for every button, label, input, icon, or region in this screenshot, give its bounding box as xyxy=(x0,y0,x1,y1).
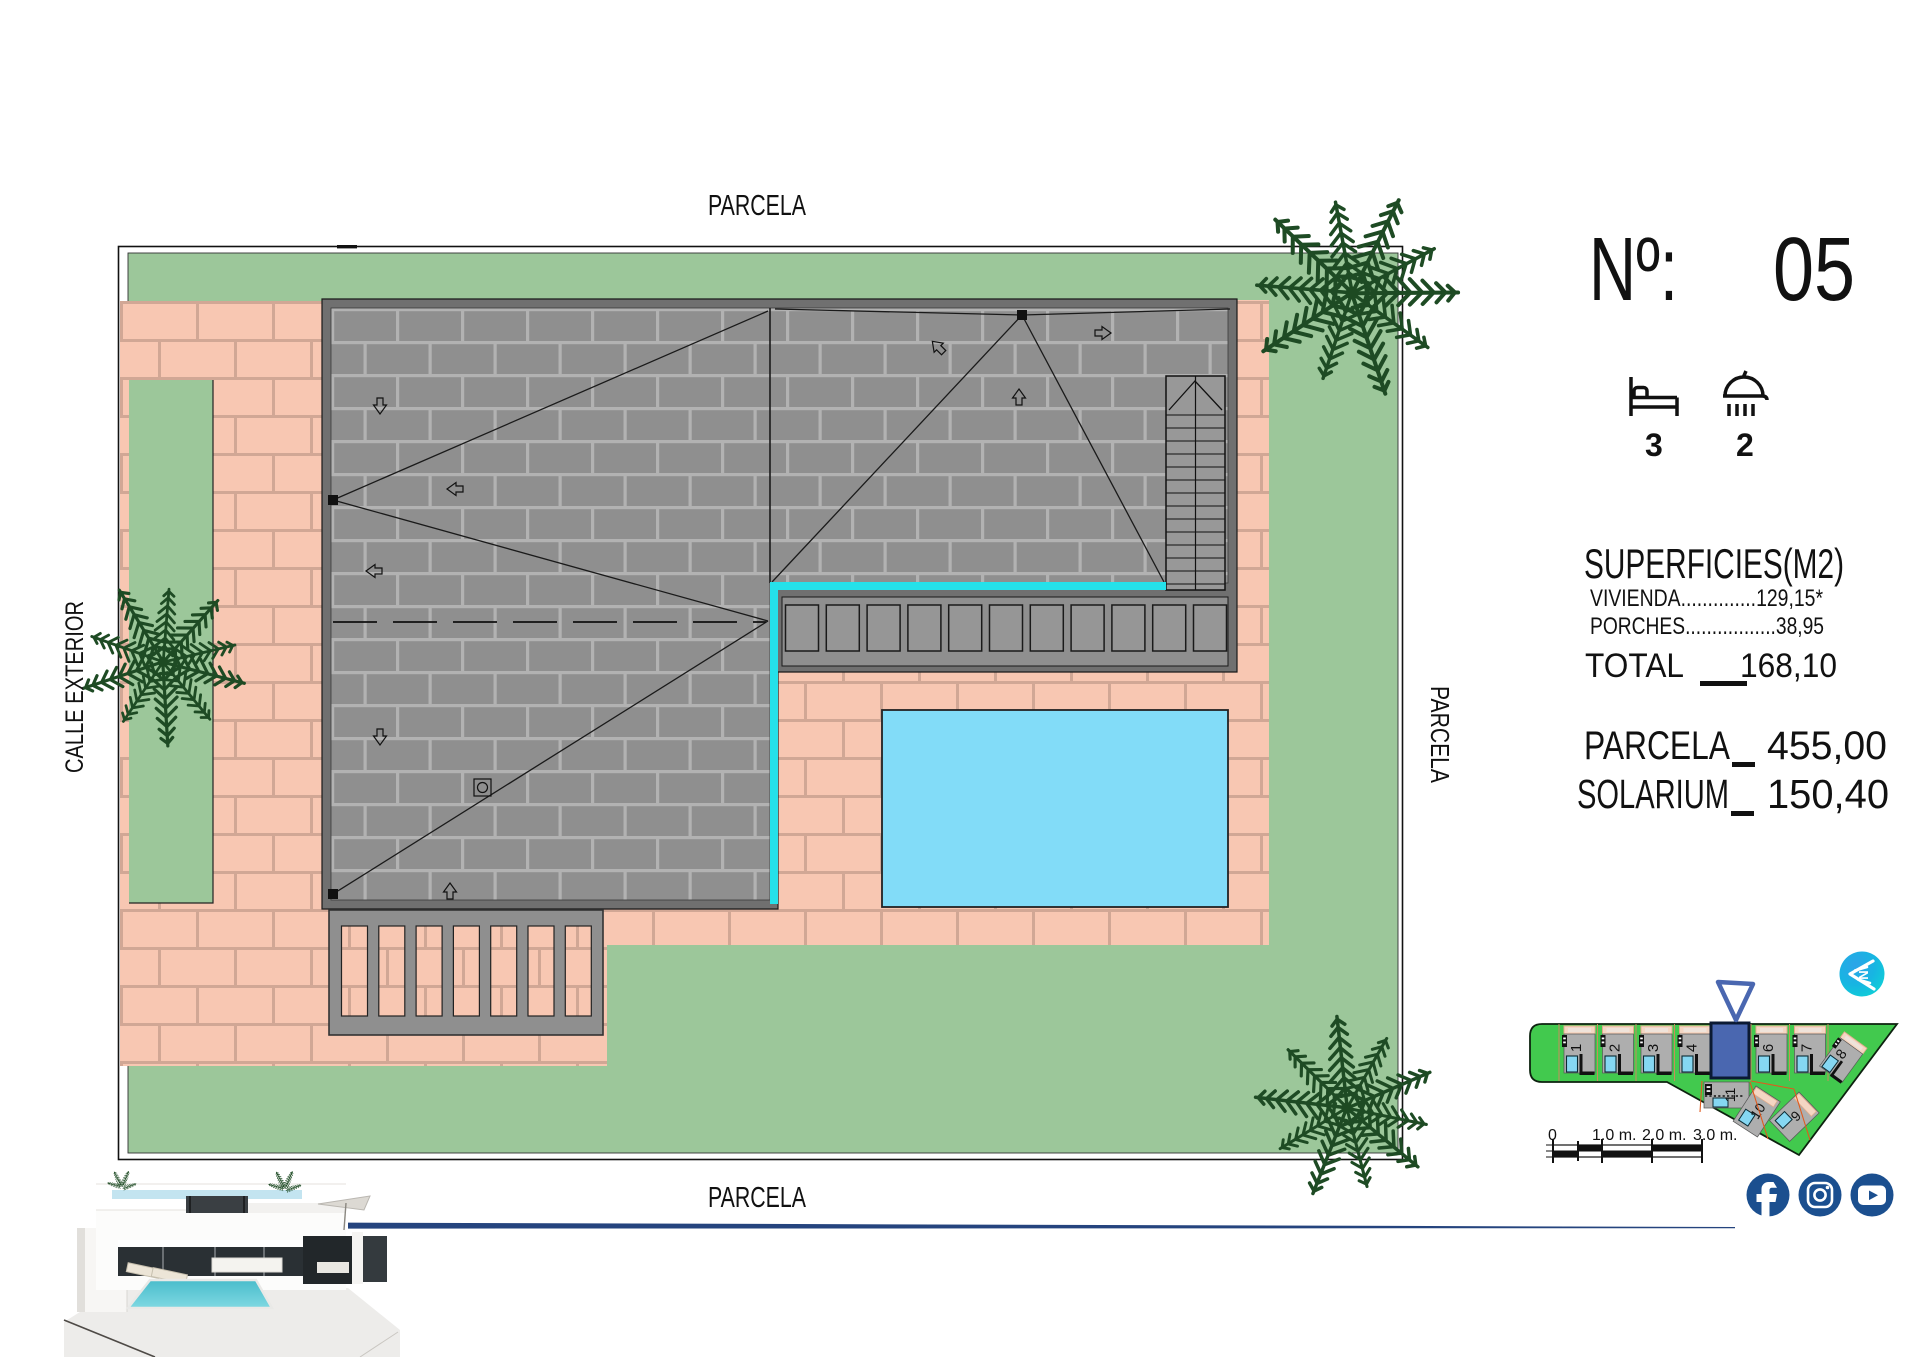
svg-text:Nº:: Nº: xyxy=(1589,220,1678,320)
svg-text:PARCELA: PARCELA xyxy=(1425,686,1455,784)
svg-text:4: 4 xyxy=(1684,1044,1701,1052)
svg-text:6: 6 xyxy=(1760,1044,1777,1052)
svg-text:TOTAL: TOTAL xyxy=(1585,647,1684,685)
svg-text:11: 11 xyxy=(1722,1088,1738,1103)
svg-text:3.0 m.: 3.0 m. xyxy=(1693,1127,1737,1144)
svg-text:3: 3 xyxy=(1645,1044,1662,1052)
svg-text:N: N xyxy=(1856,970,1871,979)
svg-text:150,40: 150,40 xyxy=(1767,771,1889,817)
svg-text:CALLE EXTERIOR: CALLE EXTERIOR xyxy=(61,601,89,773)
svg-text:2: 2 xyxy=(1607,1044,1624,1052)
svg-text:7: 7 xyxy=(1799,1044,1816,1052)
svg-text:PORCHES.................38,95: PORCHES.................38,95 xyxy=(1590,613,1824,640)
svg-text:1: 1 xyxy=(1568,1044,1585,1052)
svg-text:1.0 m.: 1.0 m. xyxy=(1592,1127,1636,1144)
svg-text:SOLARIUM: SOLARIUM xyxy=(1577,771,1729,817)
svg-text:VIVIENDA..............129,15*: VIVIENDA..............129,15* xyxy=(1590,585,1823,612)
svg-text:SUPERFICIES(M2): SUPERFICIES(M2) xyxy=(1584,540,1844,587)
svg-text:PARCELA: PARCELA xyxy=(708,190,806,222)
svg-text:455,00: 455,00 xyxy=(1767,724,1887,768)
svg-text:05: 05 xyxy=(1773,220,1855,320)
svg-text:2: 2 xyxy=(1736,427,1754,463)
svg-text:PARCELA: PARCELA xyxy=(708,1182,806,1214)
svg-text:3: 3 xyxy=(1645,427,1663,463)
svg-text:168,10: 168,10 xyxy=(1740,647,1837,685)
svg-text:PARCELA: PARCELA xyxy=(1584,724,1730,768)
svg-text:2.0 m.: 2.0 m. xyxy=(1642,1127,1686,1144)
